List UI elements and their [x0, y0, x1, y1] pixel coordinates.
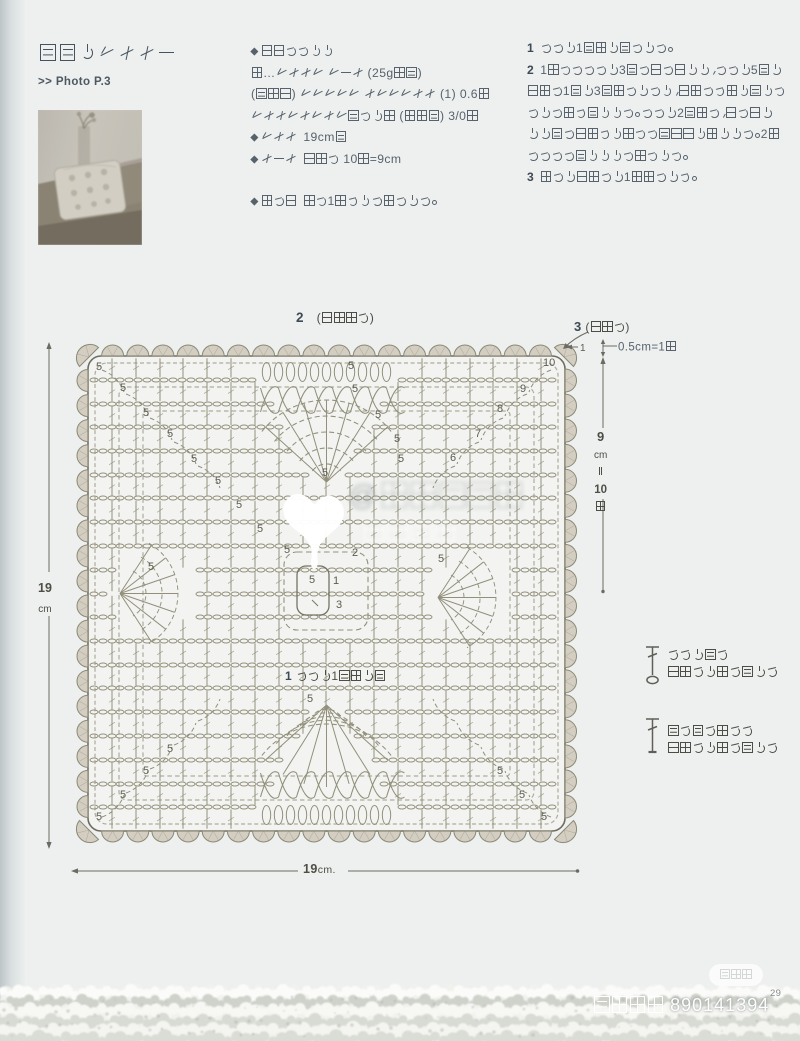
svg-text:3: 3 [336, 599, 342, 611]
svg-text:5: 5 [236, 499, 242, 511]
svg-text:5: 5 [394, 433, 400, 445]
svg-text:5: 5 [148, 561, 154, 573]
svg-text:5: 5 [120, 789, 126, 801]
svg-text:5: 5 [167, 428, 173, 440]
svg-text:2: 2 [352, 547, 358, 559]
svg-text:5: 5 [191, 453, 197, 465]
svg-text:1: 1 [580, 343, 586, 354]
svg-text:9: 9 [520, 383, 526, 395]
svg-text:5: 5 [519, 789, 525, 801]
svg-text:5: 5 [398, 453, 404, 465]
svg-text:5: 5 [215, 475, 221, 487]
svg-text:5: 5 [497, 765, 503, 777]
svg-text:5: 5 [167, 743, 173, 755]
svg-text:6: 6 [450, 452, 456, 464]
svg-text:5: 5 [96, 361, 102, 373]
svg-text:5: 5 [352, 383, 358, 395]
svg-text:1: 1 [333, 575, 339, 587]
svg-text:5: 5 [143, 407, 149, 419]
svg-text:5: 5 [257, 523, 263, 535]
svg-text:5: 5 [322, 467, 328, 479]
svg-text:5: 5 [541, 811, 547, 823]
svg-text:5: 5 [309, 574, 315, 586]
svg-text:8: 8 [497, 403, 503, 415]
svg-text:5: 5 [143, 765, 149, 777]
svg-text:5: 5 [284, 544, 290, 556]
svg-text:5: 5 [438, 553, 444, 565]
svg-text:10: 10 [543, 357, 555, 369]
svg-text:5: 5 [307, 693, 313, 705]
svg-text:5: 5 [96, 811, 102, 823]
svg-text:5: 5 [375, 409, 381, 421]
svg-text:5: 5 [348, 360, 354, 372]
svg-text:7: 7 [475, 428, 481, 440]
svg-text:5: 5 [120, 382, 126, 394]
